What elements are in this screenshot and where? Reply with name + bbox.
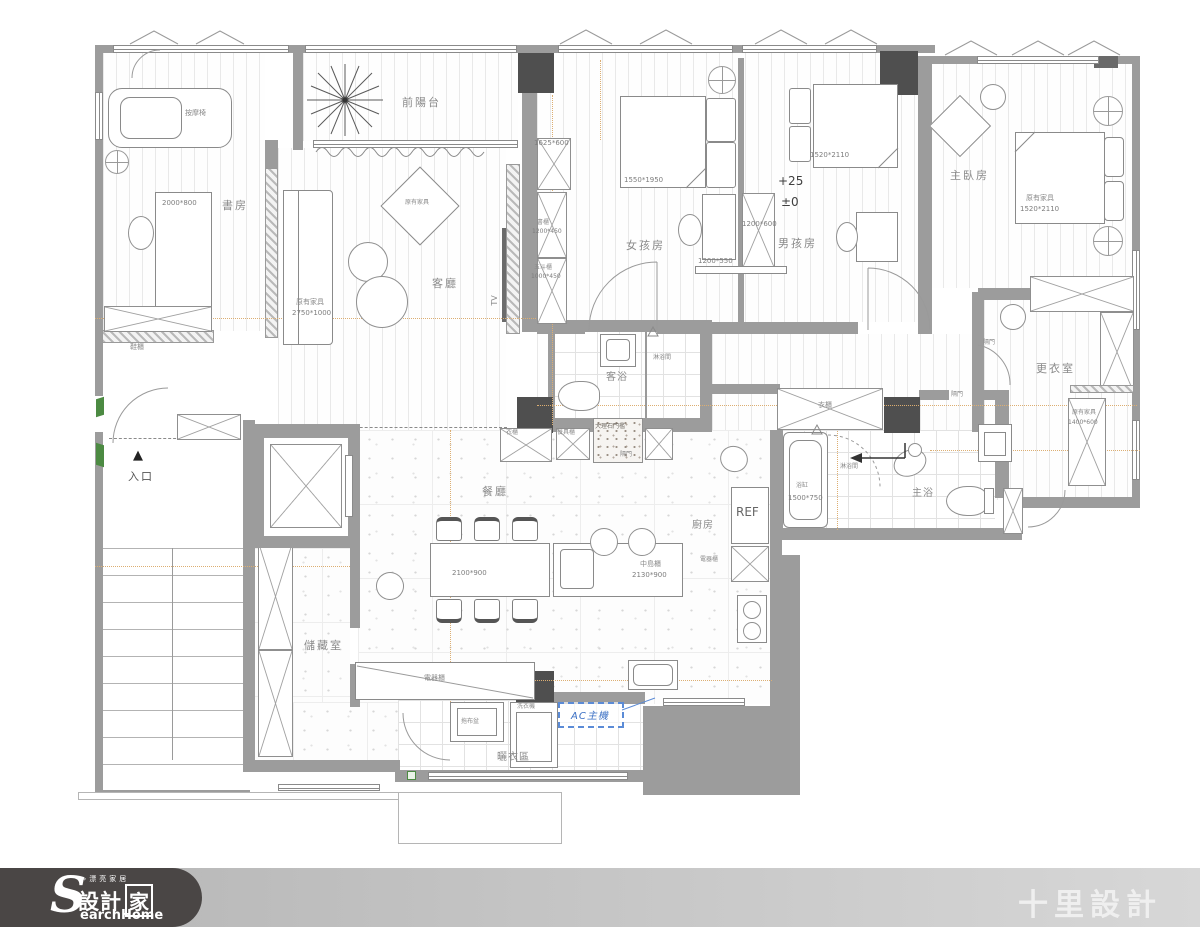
- dim-girls-desk: 1200*550: [698, 258, 733, 266]
- room-label-dressing: 更衣室: [1036, 363, 1075, 375]
- room-label-kitchen: 廚房: [692, 520, 714, 531]
- room-label-dining: 餐廳: [482, 486, 508, 498]
- dim-bookcase: 1200*450: [532, 229, 562, 236]
- room-label-entrance: 入口: [128, 468, 154, 484]
- door-arc-shower: [828, 435, 880, 487]
- level-upper: +25: [778, 174, 803, 188]
- room-label-balcony: 前陽台: [402, 97, 441, 109]
- label-mop-sink: 拖布盆: [461, 719, 479, 726]
- room-label-living: 客廳: [432, 278, 458, 290]
- label-partition-door-1: 隔門: [620, 452, 632, 459]
- label-coffee-table: 原有家具: [405, 200, 429, 207]
- floorplan-canvas: 書房 前陽台 客廳 女孩房 男孩房 主臥房 更衣室 客浴 主浴 餐廳 廚房 儲藏…: [0, 0, 1200, 927]
- door-arc-girls: [589, 262, 657, 330]
- door-arc-entry: [113, 388, 168, 443]
- level-zero: ±0: [781, 195, 799, 209]
- dim-chest: 1000*450: [531, 274, 561, 281]
- room-label-girls: 女孩房: [626, 240, 665, 252]
- label-shower-guest: 淋浴間: [653, 355, 671, 362]
- logo-en: earchHome: [80, 908, 163, 923]
- door-arc-dressing-bottom: [1028, 490, 1065, 527]
- room-label-master-bath: 主浴: [912, 488, 934, 499]
- label-ac-unit: AC主機: [571, 707, 609, 722]
- dim-study-desk: 2000*800: [162, 200, 197, 208]
- label-partition-door-3: 隔門: [951, 392, 963, 399]
- room-label-storage: 儲藏室: [304, 640, 343, 652]
- door-arc-study: [132, 50, 160, 78]
- label-bookcase: 書櫃: [537, 220, 549, 227]
- ac-leader: [622, 698, 655, 710]
- label-bathtub: 浴缸: [796, 483, 808, 490]
- drain-triangle-2: [812, 425, 822, 434]
- room-label-laundry: 曬衣區: [497, 752, 530, 763]
- logo-tagline: »漂亮家居: [82, 874, 129, 884]
- room-label-boys: 男孩房: [778, 238, 817, 250]
- label-fridge: REF: [736, 505, 759, 519]
- sideboard-diagonal: [357, 666, 533, 698]
- room-label-guest-bath: 客浴: [606, 372, 628, 383]
- label-row-closet: 衣櫃: [506, 430, 518, 437]
- label-sofa-existing: 原有家具: [296, 299, 324, 307]
- label-island: 中島櫃: [640, 561, 661, 569]
- label-shoe-cabinet: 鞋櫃: [130, 344, 144, 352]
- dim-boys-bed: 1520*2110: [810, 152, 849, 160]
- door-arc-laundry: [403, 713, 450, 760]
- dim-sofa: 2750*1000: [292, 310, 331, 318]
- dim-dining-table: 2100*900: [452, 570, 487, 578]
- label-cupboard: 餐具櫃: [557, 430, 575, 437]
- entry-arrow: ▲: [133, 448, 143, 463]
- door-arc-boys: [868, 268, 930, 330]
- label-tv: TV: [491, 295, 500, 305]
- label-marble-threshold: 大理石門檻: [595, 424, 625, 431]
- dim-hall-cabinet: 1625*600: [534, 140, 569, 148]
- bath-arrow: [850, 443, 905, 463]
- dim-girls-bed: 1550*1950: [624, 177, 663, 185]
- dim-master-bed: 1520*2110: [1020, 206, 1059, 214]
- label-massage-chair: 按摩椅: [185, 110, 206, 118]
- room-label-master: 主臥房: [950, 170, 989, 182]
- designer-name: 十里設計: [1018, 880, 1162, 924]
- label-corridor-closet: 衣櫃: [818, 402, 832, 410]
- label-washer: 洗衣機: [517, 704, 535, 711]
- label-shower-master: 淋浴間: [840, 464, 858, 471]
- dim-dresser: 1400*600: [1068, 420, 1098, 427]
- dim-island: 2130*900: [632, 572, 667, 580]
- curtain-wave: [316, 148, 484, 157]
- window-chevrons: [130, 30, 1120, 55]
- door-arc-dressing: [978, 345, 1010, 385]
- label-chest: 五斗櫃: [534, 265, 552, 272]
- dim-divider-closet: 1200*600: [742, 221, 777, 229]
- label-dresser: 原有家具: [1072, 410, 1096, 417]
- plant-starburst: [307, 64, 383, 136]
- dim-bathtub: 1500*750: [788, 495, 823, 503]
- label-master-bed: 原有家具: [1026, 195, 1054, 203]
- room-label-study: 書房: [222, 200, 248, 212]
- label-partition-door-2: 隔門: [983, 340, 995, 347]
- label-appliance-slope: 電器櫃: [424, 675, 445, 683]
- label-appliance-kitchen: 電器櫃: [700, 557, 718, 564]
